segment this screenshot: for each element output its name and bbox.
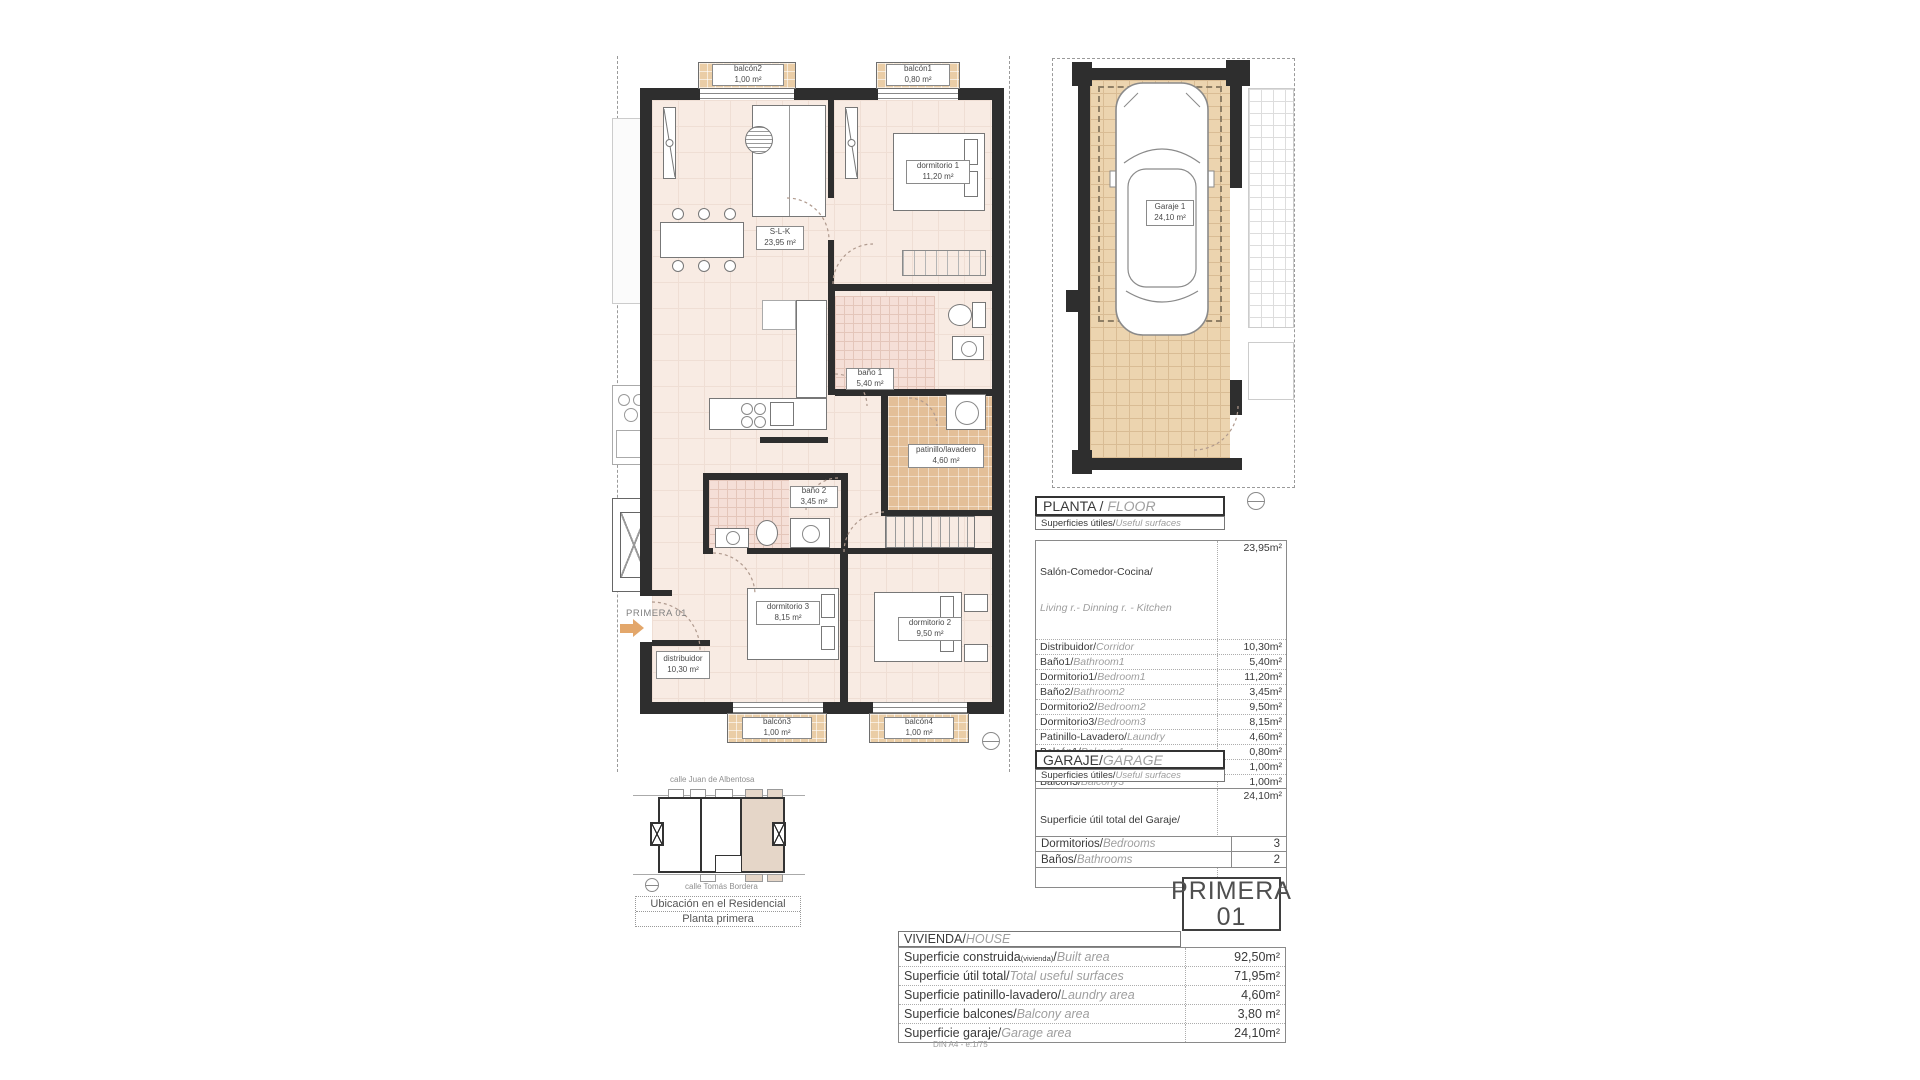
- room-label-garaje1: Garaje 124,10 m²: [1146, 200, 1194, 226]
- room-label-bano1: baño 15,40 m²: [846, 368, 894, 390]
- room-label-dormitorio2: dormitorio 29,50 m²: [898, 617, 962, 641]
- house-section-header: VIVIENDA/HOUSE: [898, 931, 1181, 947]
- house-section: VIVIENDA/HOUSE Superficie construida(viv…: [898, 931, 1286, 1043]
- room-label-dormitorio1: dormitorio 111,20 m²: [906, 160, 970, 184]
- garage-wall-left: [1078, 68, 1090, 470]
- location-map: calle Juan de Albentosa calle Tomás Bord…: [615, 770, 815, 925]
- table-row: Baño1/Bathroom1 5,40m²: [1036, 654, 1286, 669]
- compass-icon: [645, 878, 659, 892]
- garage-pillar: [1072, 62, 1092, 86]
- garage-pillar: [1226, 60, 1250, 86]
- room-label-slk: S-L-K23,95 m²: [756, 226, 804, 250]
- table-row: Baño2/Bathroom2 3,45m²: [1036, 684, 1286, 699]
- nightstand: [964, 594, 988, 612]
- street-name-top: calle Juan de Albentosa: [670, 775, 810, 784]
- street-name-bottom: calle Tomás Bordera: [685, 882, 805, 891]
- table-row: Dormitorio2/Bedroom2 9,50m²: [1036, 699, 1286, 714]
- table-row: Superficie patinillo-lavadero/Laundry ar…: [899, 985, 1285, 1004]
- bathrooms-count-row: Baños/Bathrooms 2: [1035, 852, 1287, 868]
- house-areas-table: Superficie construida(vivienda)/Built ar…: [898, 947, 1286, 1043]
- stairs: [885, 516, 975, 548]
- table-row: Salón-Comedor-Cocina/ Living r.- Dinning…: [1036, 541, 1286, 639]
- pillow: [821, 626, 835, 650]
- map-caption-line1: Ubicación en el Residencial: [636, 897, 800, 912]
- partition-dorm2-top: [848, 548, 992, 554]
- dining-table: [660, 222, 744, 258]
- neighbour-landing: [1248, 342, 1294, 400]
- garage-wall-top: [1078, 68, 1242, 80]
- table-row: Dormitorio1/Bedroom1 11,20m²: [1036, 669, 1286, 684]
- partition-slk-dorm1: [828, 100, 834, 198]
- entry-stub-wall: [652, 590, 672, 596]
- bedrooms-count-row: Dormitorios/Bedrooms 3: [1035, 836, 1287, 852]
- compass-icon: [982, 732, 1000, 750]
- map-balcony: [745, 874, 763, 882]
- garage-section-subtitle: Superficies útiles/Useful surfaces: [1035, 769, 1225, 782]
- partition-hall-left: [828, 291, 835, 395]
- dining-chair: [724, 208, 736, 220]
- property-line-right: [1009, 56, 1010, 772]
- partition-patinillo-left: [881, 396, 888, 516]
- entry-stub-wall: [652, 640, 710, 646]
- compass-icon: [1247, 492, 1265, 510]
- room-label-bano2: baño 23,45 m²: [790, 486, 838, 508]
- floor-plan-sheet: { "doc": { "footer": "DIN A4 - e:1/75" }…: [0, 0, 1920, 1080]
- kitchen-cabinet: [762, 300, 796, 330]
- room-label-balcony3: balcón31,00 m²: [742, 717, 812, 739]
- stair-core-symbol: [772, 822, 786, 846]
- garage-section-header: GARAJE/GARAGE: [1035, 750, 1225, 769]
- unit-divider: [700, 797, 702, 873]
- garage-pillar: [1072, 450, 1092, 474]
- sofa-divider: [789, 106, 790, 216]
- pillow: [821, 594, 835, 618]
- radiator-symbol: [663, 107, 676, 179]
- washing-machine-drum: [955, 401, 979, 425]
- partition-bath2-top: [703, 473, 848, 480]
- wardrobe-dormitorio1: [902, 250, 986, 276]
- room-label-balcony2: balcón21,00 m²: [712, 64, 784, 86]
- neighbour-hob-burner: [618, 394, 630, 406]
- entry-arrow-head-icon: [633, 619, 644, 637]
- table-row: Patinillo-Lavadero/Laundry 4,60m²: [1036, 729, 1286, 744]
- room-label-dormitorio3: dormitorio 38,15 m²: [756, 601, 820, 625]
- radiator-symbol: [845, 107, 858, 179]
- hob-burner: [754, 416, 766, 428]
- neighbour-hob-burner: [624, 408, 638, 422]
- hob-burner: [741, 416, 753, 428]
- table-row: Superficie balcones/Balcony area 3,80 m²: [899, 1004, 1285, 1023]
- garage-wall-bottom: [1090, 458, 1242, 470]
- map-caption: Ubicación en el Residencial Planta prime…: [635, 896, 801, 927]
- room-label-balcony4: balcón41,00 m²: [884, 717, 954, 739]
- garage-pillar: [1066, 290, 1082, 312]
- sheet-scale-note: DIN A4 - e:1/75: [933, 1040, 988, 1049]
- toilet-tank-bath1: [972, 302, 986, 328]
- table-row: Distribuidor/Corridor 10,30m²: [1036, 639, 1286, 654]
- dining-chair: [698, 208, 710, 220]
- stair-core-symbol: [650, 822, 664, 846]
- sink-basin-bath1: [961, 341, 977, 357]
- dining-chair: [698, 260, 710, 272]
- room-label-patinillo: patinillo/lavadero4,60 m²: [908, 444, 984, 468]
- unit-badge: PRIMERA 01: [1182, 877, 1281, 931]
- partition-bath2-bottom-a: [703, 548, 713, 554]
- garage-wall-right: [1230, 68, 1242, 188]
- floor-areas-table: Salón-Comedor-Cocina/ Living r.- Dinning…: [1035, 540, 1287, 828]
- hob-burner: [741, 403, 753, 415]
- floor-section-subtitle: Superficies útiles/Useful surfaces: [1035, 516, 1225, 530]
- dining-chair: [672, 208, 684, 220]
- entry-arrow-icon: [620, 624, 633, 633]
- partition-bath2-right: [841, 473, 848, 554]
- toilet-bath1: [948, 304, 972, 326]
- kitchen-counter: [709, 398, 827, 430]
- apartment-floor-plan: balcón21,00 m² balcón10,80 m² dormitorio…: [0, 0, 1920, 1080]
- table-row: Superficie construida(vivienda)/Built ar…: [899, 948, 1285, 966]
- neighbour-stair-grid: [1248, 88, 1294, 328]
- table-row: Dormitorio3/Bedroom3 8,15m²: [1036, 714, 1286, 729]
- dining-chair: [724, 260, 736, 272]
- hob-burner: [754, 403, 766, 415]
- room-label-distribuidor: distribuidor10,30 m²: [656, 651, 710, 679]
- partition-dorm1-bottom: [828, 284, 992, 291]
- sink-basin-bath2: [726, 531, 740, 545]
- partition-dorm2-left: [840, 552, 848, 702]
- dining-chair: [672, 260, 684, 272]
- floor-section-header: PLANTA / FLOOR: [1035, 496, 1225, 516]
- map-balcony: [700, 874, 716, 882]
- map-caption-line2: Planta primera: [636, 912, 800, 926]
- toilet-bath2: [756, 520, 778, 546]
- kitchen-sink: [770, 402, 794, 426]
- nightstand: [964, 644, 988, 662]
- shower-drain-bath2: [802, 525, 820, 543]
- map-balcony: [767, 874, 783, 882]
- footprint-notch: [715, 855, 742, 873]
- counts-table: Dormitorios/Bedrooms 3 Baños/Bathrooms 2: [1035, 836, 1287, 868]
- window-balcony2: [700, 88, 794, 100]
- partition-bath2-bottom-b: [747, 548, 848, 554]
- kitchen-counter-vertical: [796, 300, 827, 398]
- round-rug: [745, 126, 773, 154]
- window-balcony1: [878, 88, 958, 100]
- room-label-balcony1: balcón10,80 m²: [886, 64, 950, 86]
- entry-unit-label: PRIMERA 01: [626, 608, 706, 619]
- partition-kitchen-corridor: [760, 437, 828, 443]
- garage-wall-right-stub: [1230, 380, 1242, 415]
- table-row: Superficie útil total/Total useful surfa…: [899, 966, 1285, 985]
